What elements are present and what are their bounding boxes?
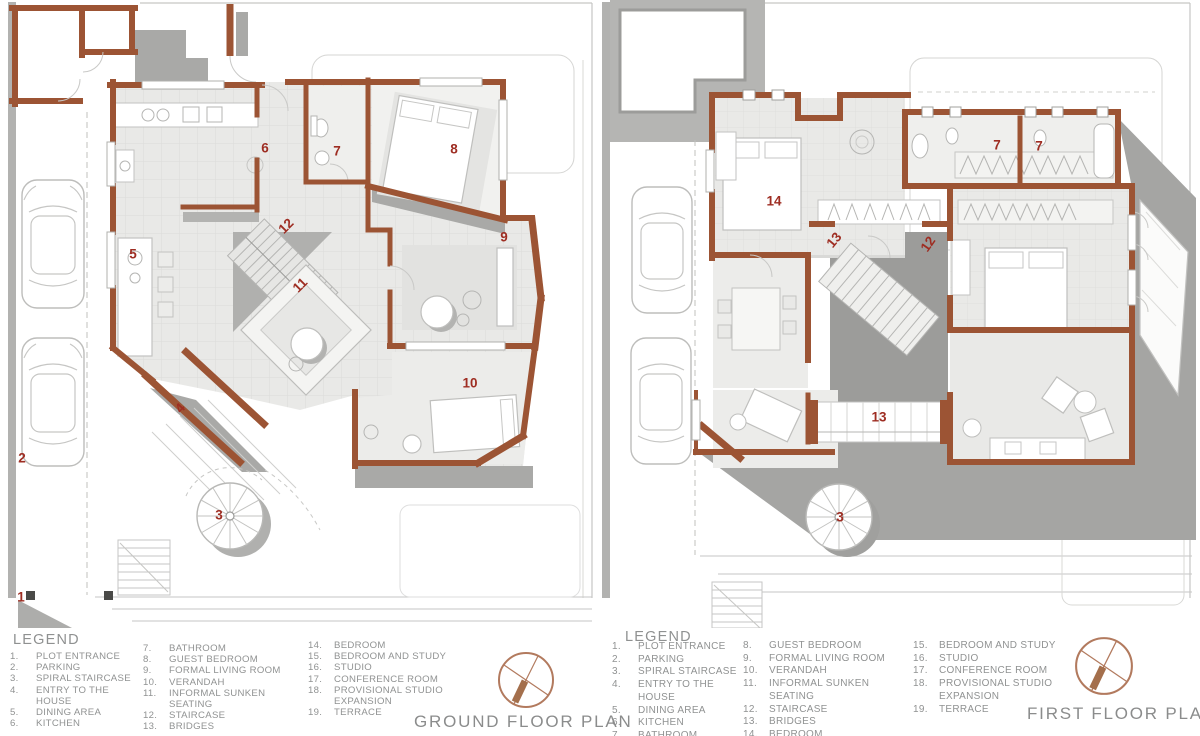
- ground-floor-drawing: [0, 0, 600, 628]
- legend-item-text: STAIRCASE: [769, 704, 910, 717]
- legend-item-text: GUEST BEDROOM: [769, 640, 910, 653]
- legend-item-number: 1.: [10, 651, 36, 662]
- legend-item: 2.PARKING: [612, 654, 740, 667]
- legend-item-number: 19.: [913, 704, 939, 717]
- legend-item: 13.BRIDGES: [743, 716, 910, 729]
- legend-item-text: PLOT ENTRANCE: [638, 641, 740, 654]
- legend-item: 18.PROVISIONAL STUDIO EXPANSION: [308, 685, 460, 707]
- legend-item: 11.INFORMAL SUNKEN SEATING: [743, 678, 910, 703]
- legend-item-text: PROVISIONAL STUDIO EXPANSION: [334, 685, 460, 707]
- legend-item-number: 11.: [143, 688, 169, 699]
- legend-item: 5.DINING AREA: [10, 707, 140, 718]
- legend-item-number: 8.: [143, 654, 169, 665]
- legend-item-number: 7.: [143, 643, 169, 654]
- legend-item-text: BEDROOM AND STUDY: [334, 651, 460, 662]
- legend-item: 18.PROVISIONAL STUDIO EXPANSION: [913, 678, 1078, 703]
- legend-item-number: 14.: [743, 729, 769, 736]
- legend-item: 17.CONFERENCE ROOM: [308, 674, 460, 685]
- legend-item-number: 10.: [143, 677, 169, 688]
- legend-item-text: STUDIO: [334, 662, 460, 673]
- garden-stair: [118, 540, 170, 595]
- legend-item-number: 5.: [10, 707, 36, 718]
- legend-item: 14.BEDROOM: [308, 640, 460, 651]
- legend-item-number: 6.: [10, 718, 36, 729]
- legend-item: 2.PARKING: [10, 662, 140, 673]
- legend-item: 12.STAIRCASE: [743, 704, 910, 717]
- legend-item-text: KITCHEN: [36, 718, 140, 729]
- legend-item-number: 4.: [612, 679, 638, 692]
- legend-item: 11.INFORMAL SUNKEN SEATING: [143, 688, 305, 710]
- legend-item-number: 10.: [743, 665, 769, 678]
- legend-item-text: PARKING: [36, 662, 140, 673]
- legend-item-text: GUEST BEDROOM: [169, 654, 305, 665]
- legend-item-text: BEDROOM: [334, 640, 460, 651]
- legend-item-number: 2.: [612, 654, 638, 667]
- legend-item-number: 16.: [308, 662, 334, 673]
- legend-item-text: CONFERENCE ROOM: [334, 674, 460, 685]
- legend-item-text: DINING AREA: [638, 705, 740, 718]
- legend-item-number: 14.: [308, 640, 334, 651]
- legend-item-number: 17.: [913, 665, 939, 678]
- ground-floor-title: GROUND FLOOR PLAN: [414, 712, 633, 732]
- legend-item-text: BEDROOM: [769, 729, 910, 736]
- parked-cars: [631, 187, 692, 464]
- bathroom: [308, 86, 366, 182]
- legend-item-text: FORMAL LIVING ROOM: [769, 653, 910, 666]
- legend-column-3: 14.BEDROOM15.BEDROOM AND STUDY16.STUDIO1…: [308, 640, 460, 718]
- legend-item-text: ENTRY TO THE HOUSE: [638, 679, 740, 704]
- legend-item-text: SPIRAL STAIRCASE: [36, 673, 140, 684]
- legend-item-number: 17.: [308, 674, 334, 685]
- legend-item: 7.BATHROOM: [143, 643, 305, 654]
- legend-item-text: INFORMAL SUNKEN SEATING: [169, 688, 305, 710]
- legend-item-text: INFORMAL SUNKEN SEATING: [769, 678, 910, 703]
- legend-item: 3.SPIRAL STAIRCASE: [10, 673, 140, 684]
- legend-item: 17.CONFERENCE ROOM: [913, 665, 1078, 678]
- legend-item: 8.GUEST BEDROOM: [743, 640, 910, 653]
- legend-item-number: 8.: [743, 640, 769, 653]
- first-floor-plan: 14131277133: [600, 0, 1200, 628]
- legend-item-text: BRIDGES: [769, 716, 910, 729]
- parked-cars: [22, 180, 84, 466]
- legend-item-number: 9.: [143, 665, 169, 676]
- legend-item-text: BATHROOM: [169, 643, 305, 654]
- legend-item-text: VERANDAH: [169, 677, 305, 688]
- legend-item-text: SPIRAL STAIRCASE: [638, 666, 740, 679]
- legend-item: 15.BEDROOM AND STUDY: [913, 640, 1078, 653]
- legend-item-text: KITCHEN: [638, 717, 740, 730]
- spiral-staircase: [186, 468, 271, 557]
- legend-item: 6.KITCHEN: [10, 718, 140, 729]
- legend-item-text: ENTRY TO THE HOUSE: [36, 685, 140, 707]
- legend-item-text: VERANDAH: [769, 665, 910, 678]
- legend-item: 3.SPIRAL STAIRCASE: [612, 666, 740, 679]
- legend-item-text: BRIDGES: [169, 721, 305, 732]
- legend-item-number: 2.: [10, 662, 36, 673]
- legend-title: LEGEND: [13, 632, 80, 648]
- legend-item-number: 12.: [743, 704, 769, 717]
- legend-item-number: 15.: [913, 640, 939, 653]
- garden-stair: [712, 582, 762, 628]
- legend-item: 10.VERANDAH: [143, 677, 305, 688]
- legend-item-number: 13.: [143, 721, 169, 732]
- formal-living-room: [402, 245, 517, 332]
- floor-plan-sheet: 123456789101112: [0, 0, 1200, 736]
- legend-item-text: PROVISIONAL STUDIO EXPANSION: [939, 678, 1078, 703]
- legend-item: 1.PLOT ENTRANCE: [10, 651, 140, 662]
- legend-item: 9.FORMAL LIVING ROOM: [743, 653, 910, 666]
- legend-item-text: FORMAL LIVING ROOM: [169, 665, 305, 676]
- legend-item-number: 13.: [743, 716, 769, 729]
- legend-item-number: 4.: [10, 685, 36, 696]
- legend-item: 10.VERANDAH: [743, 665, 910, 678]
- legend-item-number: 18.: [913, 678, 939, 691]
- legend-item-number: 3.: [10, 673, 36, 684]
- legend-item-text: STAIRCASE: [169, 710, 305, 721]
- legend-item-number: 9.: [743, 653, 769, 666]
- legend-item-number: 11.: [743, 678, 769, 691]
- legend-item-text: BATHROOM: [638, 730, 740, 736]
- legend-item: 4.ENTRY TO THE HOUSE: [612, 679, 740, 704]
- legend-item-number: 3.: [612, 666, 638, 679]
- legend-item-number: 1.: [612, 641, 638, 654]
- legend-item: 8.GUEST BEDROOM: [143, 654, 305, 665]
- legend-column-2: 7.BATHROOM8.GUEST BEDROOM9.FORMAL LIVING…: [143, 643, 305, 733]
- legend-item-number: 18.: [308, 685, 334, 696]
- legend-item-text: CONFERENCE ROOM: [939, 665, 1078, 678]
- legend-item: 9.FORMAL LIVING ROOM: [143, 665, 305, 676]
- legend-item: 12.STAIRCASE: [143, 710, 305, 721]
- north-compass-icon: [496, 650, 556, 710]
- legend-item-number: 15.: [308, 651, 334, 662]
- first-floor-title: FIRST FLOOR PLAN: [1027, 704, 1200, 724]
- legend-item: 16.STUDIO: [308, 662, 460, 673]
- legend-column-1: 1.PLOT ENTRANCE2.PARKING3.SPIRAL STAIRCA…: [10, 651, 140, 729]
- legend-item: 15.BEDROOM AND STUDY: [308, 651, 460, 662]
- legend-item-number: 16.: [913, 653, 939, 666]
- legend-item-text: BEDROOM AND STUDY: [939, 640, 1078, 653]
- first-floor-drawing: [600, 0, 1200, 628]
- legend-item: 1.PLOT ENTRANCE: [612, 641, 740, 654]
- legend-item: 14.BEDROOM: [743, 729, 910, 736]
- legend-item: 4.ENTRY TO THE HOUSE: [10, 685, 140, 707]
- legend-item-text: PARKING: [638, 654, 740, 667]
- legend-column-2: 8.GUEST BEDROOM9.FORMAL LIVING ROOM10.VE…: [743, 640, 910, 736]
- legend-item-text: DINING AREA: [36, 707, 140, 718]
- ground-floor-plan: 123456789101112: [0, 0, 600, 628]
- legend-item-text: PLOT ENTRANCE: [36, 651, 140, 662]
- legend-item-text: STUDIO: [939, 653, 1078, 666]
- legend-item-number: 19.: [308, 707, 334, 718]
- legend-item-number: 12.: [143, 710, 169, 721]
- legend-item: 13.BRIDGES: [143, 721, 305, 732]
- north-compass-icon: [1073, 635, 1135, 697]
- legend-item: 16.STUDIO: [913, 653, 1078, 666]
